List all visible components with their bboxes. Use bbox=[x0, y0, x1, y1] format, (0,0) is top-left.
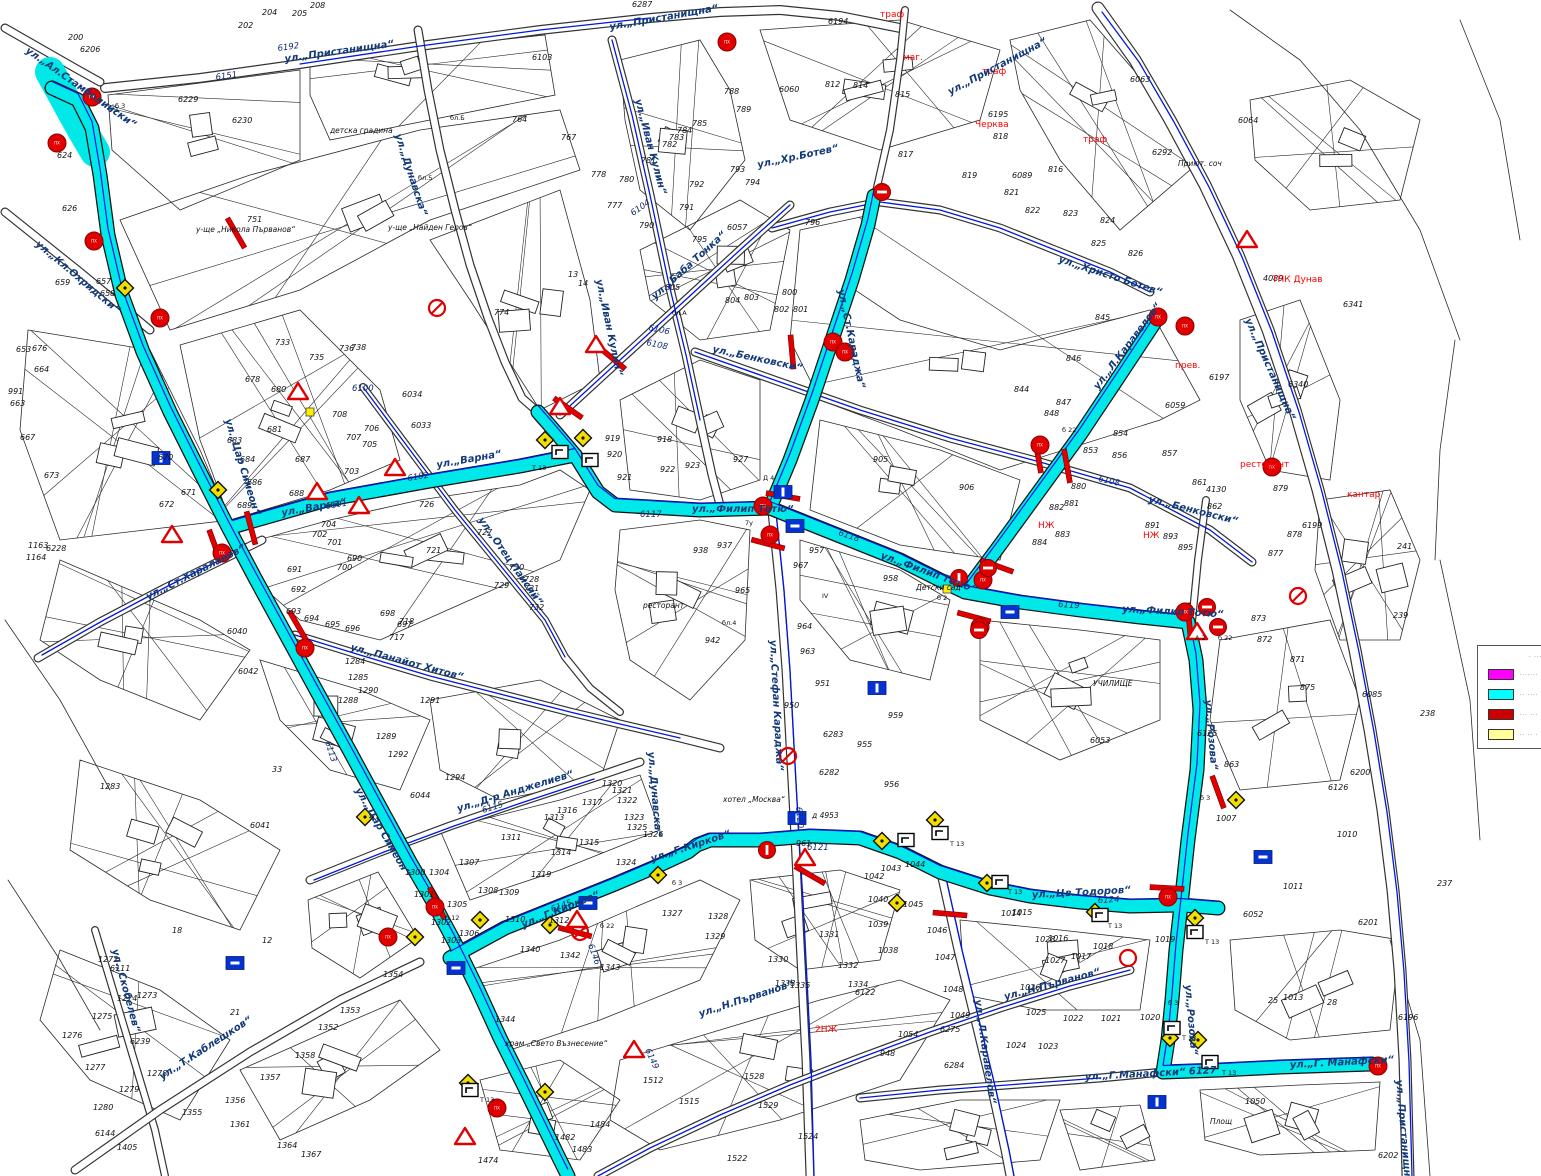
parcel-number: 1515 bbox=[679, 1097, 699, 1106]
parcel-number: 1019 bbox=[1155, 935, 1175, 944]
parcel-number: 6292 bbox=[1152, 148, 1172, 157]
valve-dot bbox=[1234, 798, 1237, 801]
parcel-number: 6057 bbox=[727, 223, 748, 232]
no-entry-bar bbox=[877, 191, 887, 194]
parcel-number: 6052 bbox=[1243, 910, 1263, 919]
parcel-number: 1279 bbox=[119, 1085, 139, 1094]
parcel-number: 794 bbox=[745, 178, 760, 187]
parcel-line bbox=[822, 872, 859, 963]
street-name-label: ул.„Хр.Ботев“ bbox=[756, 143, 840, 171]
parcel-number: 1039 bbox=[868, 920, 888, 929]
parcel-number: 1405 bbox=[117, 1143, 137, 1152]
parcel-number: 1324 bbox=[616, 858, 636, 867]
road-code: 6100 bbox=[352, 384, 374, 394]
parcel-number: 6040 bbox=[227, 627, 247, 636]
parcel-number: 21 bbox=[230, 1008, 240, 1017]
road-code: 6121 bbox=[807, 843, 829, 853]
hydrant-label: ПХ bbox=[724, 40, 730, 45]
poi-label: у-ще „Найден Геров“ bbox=[387, 223, 472, 232]
parcel-number: 6340 bbox=[1288, 380, 1308, 389]
parcel-number: 967 bbox=[793, 561, 809, 570]
legend-swatch-icon bbox=[1488, 709, 1514, 720]
shaft-box-marker bbox=[898, 834, 914, 847]
parcel-number: 789 bbox=[736, 105, 751, 114]
parcel-number: 1040 bbox=[868, 895, 888, 904]
parcel-block bbox=[1250, 80, 1420, 210]
parcel-line bbox=[106, 811, 219, 872]
street-casing bbox=[598, 970, 1130, 1176]
parcel-number: 1361 bbox=[230, 1120, 250, 1129]
parcel-line bbox=[1286, 932, 1314, 1038]
parcel-number: 824 bbox=[1100, 216, 1115, 225]
building-outline bbox=[139, 859, 161, 875]
hydrant-label: ПХ bbox=[830, 340, 836, 345]
parcel-number: 991 bbox=[8, 387, 23, 396]
parcel-number: 921 bbox=[617, 473, 632, 482]
road-code: 6117 bbox=[640, 510, 662, 520]
parcel-number: 1007 bbox=[1216, 814, 1237, 823]
valve-dot bbox=[985, 881, 988, 884]
parcel-number: 822 bbox=[1025, 206, 1040, 215]
parcel-number: 1164 bbox=[26, 553, 46, 562]
parcel-line bbox=[1379, 492, 1388, 640]
parcel-number: 733 bbox=[275, 338, 290, 347]
parcel-number: 1020 bbox=[1140, 1013, 1160, 1022]
parcel-number: 1292 bbox=[388, 750, 408, 759]
parcel-number: 202 bbox=[238, 21, 253, 30]
utility-red-label: НЖ bbox=[1143, 531, 1160, 541]
parcel-number: 873 bbox=[1251, 614, 1266, 623]
parcel-number: 856 bbox=[1112, 451, 1127, 460]
parcel-number: 6089 bbox=[1012, 171, 1032, 180]
building-outline bbox=[166, 817, 203, 847]
parcel-number: 871 bbox=[1290, 655, 1305, 664]
info-sign-bar bbox=[876, 684, 879, 693]
map-annotation: А 2 bbox=[1195, 634, 1206, 642]
valve-dot bbox=[1168, 1036, 1171, 1039]
valve-dot bbox=[543, 1090, 546, 1093]
parcel-number: 13 bbox=[568, 270, 578, 279]
parcel-number: 774 bbox=[494, 308, 509, 317]
parcel-number: 696 bbox=[345, 624, 360, 633]
parcel-line bbox=[478, 821, 604, 853]
parcel-number: 1047 bbox=[935, 953, 956, 962]
parcel-number: 6144 bbox=[95, 1129, 115, 1138]
building-outline bbox=[1338, 128, 1365, 151]
parcel-number: 1010 bbox=[1337, 830, 1357, 839]
map-annotation: бл.5 bbox=[418, 174, 432, 182]
parcel-number: 1054 bbox=[898, 1030, 918, 1039]
building-outline bbox=[1051, 687, 1092, 707]
parcel-number: 1352 bbox=[318, 1023, 338, 1032]
map-annotation: б 3 bbox=[1200, 794, 1210, 802]
parcel-number: 938 bbox=[693, 546, 708, 555]
parcel-number: 1023 bbox=[1038, 1042, 1058, 1051]
parcel-number: 795 bbox=[692, 235, 707, 244]
map-annotation: Т 13 bbox=[1007, 888, 1022, 896]
utility-red-label: НЖ bbox=[1038, 521, 1055, 531]
parcel-number: 624 bbox=[57, 151, 72, 160]
road-code: 6151 bbox=[215, 70, 238, 83]
parcel-number: 1358 bbox=[295, 1051, 315, 1060]
parcel-number: 204 bbox=[262, 8, 277, 17]
map-annotation: б 3 bbox=[672, 879, 682, 887]
utility-red-label: маг. bbox=[903, 53, 923, 63]
closure-bar-marker bbox=[1210, 775, 1226, 809]
map-annotation: б 12 bbox=[445, 914, 459, 922]
map-annotation: IV bbox=[822, 592, 829, 600]
parcel-number: 1017 bbox=[1071, 952, 1092, 961]
parcel-number: 875 bbox=[1300, 683, 1315, 692]
parcel-number: 1285 bbox=[348, 673, 368, 682]
parcel-line bbox=[822, 872, 846, 967]
parcel-number: 704 bbox=[321, 520, 336, 529]
parcel-number: 717 bbox=[389, 633, 405, 642]
parcel-line bbox=[59, 564, 249, 652]
parcel-number: 6041 bbox=[250, 821, 270, 830]
parcel-number: 823 bbox=[1063, 209, 1078, 218]
map-annotation: б 22 bbox=[1062, 426, 1076, 434]
parcel-number: 1050 bbox=[1245, 1097, 1265, 1106]
parcel-number: 1328 bbox=[708, 912, 728, 921]
parcel-number: 777 bbox=[607, 201, 623, 210]
parcel-number: 12 bbox=[262, 936, 272, 945]
parcel-number: 702 bbox=[312, 530, 327, 539]
parcel-number: 948 bbox=[880, 1049, 895, 1058]
legend-row: ·· ·· · bbox=[1488, 729, 1541, 740]
parcel-number: 821 bbox=[1004, 188, 1019, 197]
parcel-line bbox=[478, 967, 706, 968]
parcel-number: 1315 bbox=[579, 838, 599, 847]
parcel-line bbox=[857, 455, 953, 528]
map-annotation: б 3 bbox=[1168, 999, 1178, 1007]
parcel-number: 200 bbox=[68, 33, 83, 42]
parcel-number: 663 bbox=[10, 399, 25, 408]
parcel-number: 767 bbox=[561, 133, 577, 142]
road-code: 6108 bbox=[1097, 474, 1121, 489]
parcel-number: 804 bbox=[725, 296, 740, 305]
utility-red-label: траф bbox=[880, 10, 904, 20]
parcel-number: 1364 bbox=[277, 1141, 297, 1150]
parcel-number: 963 bbox=[800, 647, 815, 656]
parcel-number: 238 bbox=[1420, 709, 1435, 718]
parcel-number: 825 bbox=[1091, 239, 1106, 248]
parcel-number: 1277 bbox=[85, 1063, 106, 1072]
parcel-number: 6063 bbox=[1130, 75, 1150, 84]
parcel-number: 1046 bbox=[927, 926, 947, 935]
parcel-number: 701 bbox=[327, 538, 342, 547]
parcel-number: 6206 bbox=[80, 45, 100, 54]
shaft-box-marker bbox=[932, 827, 948, 840]
road-code: 6119 bbox=[1058, 600, 1080, 611]
parcel-number: 1027 bbox=[1045, 956, 1066, 965]
parcel-number: 667 bbox=[20, 433, 36, 442]
no-entry-bar bbox=[1213, 626, 1223, 629]
no-stopping-bar bbox=[766, 845, 769, 855]
valve-dot bbox=[216, 488, 219, 491]
warning-triangle-icon bbox=[385, 459, 405, 475]
building-outline bbox=[1091, 1109, 1116, 1131]
parcel-line bbox=[513, 202, 530, 368]
parcel-number: 205 bbox=[292, 9, 307, 18]
parcel-number: 1355 bbox=[182, 1108, 202, 1117]
parcel-number: 861 bbox=[1192, 478, 1207, 487]
parcel-number: 845 bbox=[1095, 313, 1110, 322]
shaft-box-marker bbox=[1164, 1022, 1180, 1035]
map-annotation: б 22 bbox=[600, 922, 614, 930]
parcel-number: 1484 bbox=[590, 1120, 610, 1129]
parcel-number: 678 bbox=[245, 375, 260, 384]
parcel-number: 826 bbox=[1128, 249, 1143, 258]
parcel-number: 1529 bbox=[758, 1101, 778, 1110]
street-fill bbox=[598, 970, 1130, 1176]
parcel-number: 872 bbox=[1257, 635, 1272, 644]
parcel-number: 895 bbox=[1178, 543, 1193, 552]
parcel-number: 6053 bbox=[1090, 736, 1110, 745]
parcel-number: 626 bbox=[62, 204, 77, 213]
parcel-number: 780 bbox=[619, 175, 634, 184]
utility-red-label: ТПК Дунав bbox=[1271, 275, 1323, 285]
parcel-number: 844 bbox=[1014, 385, 1029, 394]
parcel-number: 920 bbox=[607, 450, 622, 459]
building-outline bbox=[656, 572, 677, 595]
parcel-number: 857 bbox=[1162, 449, 1178, 458]
street-name-label: ул.„Розова“ bbox=[1182, 984, 1199, 1056]
warning-triangle-icon bbox=[586, 336, 606, 352]
parcel-number: 818 bbox=[993, 132, 1008, 141]
poi-label: детска градина bbox=[329, 126, 393, 135]
parcel-number: 729 bbox=[494, 581, 509, 590]
field-line bbox=[1435, 340, 1455, 560]
parcel-number: 1512 bbox=[643, 1076, 663, 1085]
valve-dot bbox=[413, 935, 416, 938]
restriction-slash bbox=[432, 303, 443, 314]
parcel-line bbox=[286, 716, 421, 726]
parcel-line bbox=[826, 872, 843, 965]
parcel-number: 881 bbox=[1064, 499, 1079, 508]
closure-bar-marker bbox=[933, 910, 967, 918]
restriction-slash bbox=[1293, 591, 1304, 602]
parcel-number: 1357 bbox=[260, 1073, 281, 1082]
poi-label: Площ bbox=[1210, 1117, 1232, 1126]
legend-swatch-icon bbox=[1488, 669, 1514, 680]
parcel-number: 738 bbox=[351, 343, 366, 352]
parcel-number: 14 bbox=[578, 279, 588, 288]
legend-swatch-icon bbox=[1488, 689, 1514, 700]
parcel-number: 846 bbox=[1066, 354, 1081, 363]
parcel-number: 700 bbox=[337, 563, 352, 572]
parcel-number: 1306 bbox=[459, 929, 479, 938]
parcel-number: 6199 bbox=[1302, 521, 1322, 530]
poi-label: храм „Свето Възнесение“ bbox=[504, 1039, 607, 1048]
parcel-number: 1524 bbox=[798, 1132, 818, 1141]
parcel-number: 905 bbox=[873, 455, 888, 464]
hydrant-label: ПХ bbox=[302, 646, 308, 651]
parcel-number: 817 bbox=[898, 150, 914, 159]
parcel-number: 942 bbox=[705, 636, 720, 645]
warning-triangle-icon bbox=[455, 1128, 475, 1144]
parcel-number: 1340 bbox=[520, 945, 540, 954]
shaft-box-marker bbox=[1092, 909, 1108, 922]
parcel-number: 1483 bbox=[572, 1145, 592, 1154]
parcel-number: 1319 bbox=[531, 870, 551, 879]
parcel-number: 1289 bbox=[376, 732, 396, 741]
map-annotation: Т 13 bbox=[1107, 922, 1122, 930]
hydrant-label: ПХ bbox=[385, 935, 391, 940]
parcel-line bbox=[625, 985, 879, 1129]
parcel-number: 6287 bbox=[632, 0, 653, 9]
parcel-number: 1016 bbox=[1048, 934, 1068, 943]
parcel-number: 1021 bbox=[1101, 1014, 1121, 1023]
valve-dot bbox=[363, 815, 366, 818]
poi-label: УЧИЛИЩЕ bbox=[1093, 679, 1133, 688]
parcel-number: 6034 bbox=[402, 390, 422, 399]
parcel-line bbox=[1225, 1089, 1347, 1151]
map-annotation: бл.Б bbox=[450, 114, 465, 122]
road-code: 6120 bbox=[793, 806, 805, 828]
parcel-number: 1280 bbox=[93, 1103, 113, 1112]
parcel-number: 692 bbox=[291, 585, 306, 594]
parcel-number: 698 bbox=[380, 609, 395, 618]
info-sign-bar bbox=[1156, 1098, 1159, 1107]
warning-triangle-icon bbox=[567, 911, 587, 927]
parcel-number: 764 bbox=[512, 115, 527, 124]
building-outline bbox=[188, 136, 219, 156]
parcel-number: 1308 bbox=[478, 886, 498, 895]
parcel-number: 1288 bbox=[338, 696, 358, 705]
parcel-number: 6283 bbox=[823, 730, 843, 739]
no-entry-bar bbox=[983, 567, 993, 570]
parcel-number: 4130 bbox=[1206, 485, 1226, 494]
parcel-line bbox=[1267, 628, 1288, 788]
parcel-number: 816 bbox=[1048, 165, 1063, 174]
parcel-number: 6341 bbox=[1343, 300, 1363, 309]
parcel-number: 693 bbox=[286, 607, 301, 616]
parcel-number: 1011 bbox=[1283, 882, 1303, 891]
parcel-number: 688 bbox=[289, 489, 304, 498]
parcel-number: 6197 bbox=[1209, 373, 1230, 382]
building-outline bbox=[950, 1109, 980, 1136]
valve-dot bbox=[656, 873, 659, 876]
parcel-line bbox=[674, 373, 679, 497]
valve-dot bbox=[478, 918, 481, 921]
parcel-number: 653 bbox=[16, 345, 31, 354]
parcel-number: 706 bbox=[364, 424, 379, 433]
parcel-number: 880 bbox=[1071, 482, 1086, 491]
info-sign-bar bbox=[791, 525, 800, 528]
parcel-line bbox=[1283, 628, 1331, 780]
field-line bbox=[1230, 10, 1460, 340]
parcel-number: 1322 bbox=[617, 796, 637, 805]
utility-red-label: Черква bbox=[975, 120, 1009, 130]
water-pipe-line bbox=[1102, 12, 1412, 1176]
parcel-number: 848 bbox=[1044, 409, 1059, 418]
yellow-square-marker bbox=[306, 408, 314, 416]
parcel-number: 6196 bbox=[1398, 1013, 1418, 1022]
info-sign-bar bbox=[452, 967, 461, 970]
hydrant-label: ПХ bbox=[1165, 895, 1171, 900]
parcel-line bbox=[122, 774, 234, 928]
valve-dot bbox=[895, 901, 898, 904]
parcel-number: 718 bbox=[399, 617, 414, 626]
parcel-number: 1307 bbox=[459, 858, 480, 867]
parcel-number: 788 bbox=[724, 87, 739, 96]
parcel-line bbox=[1269, 96, 1396, 200]
map-annotation: Т 13 bbox=[531, 464, 546, 472]
parcel-number: 721 bbox=[426, 546, 441, 555]
parcel-number: 1354 bbox=[383, 970, 403, 979]
street-name-label: ул.„Т.Каблешков“ bbox=[157, 1013, 254, 1082]
parcel-number: 6228 bbox=[46, 544, 66, 553]
parcel-number: 1316 bbox=[557, 806, 577, 815]
parcel-number: 791 bbox=[679, 203, 694, 212]
legend-row: ·· ···· bbox=[1488, 689, 1541, 700]
parcel-number: 785 bbox=[692, 119, 707, 128]
parcel-number: 673 bbox=[44, 471, 59, 480]
parcel-number: 671 bbox=[181, 488, 196, 497]
parcel-number: 1049 bbox=[950, 1011, 970, 1020]
city-map-canvas: ПХПХПХПХПХПХПХПХПХПХПХПХПХПХПХПХПХПХПХПХ… bbox=[0, 0, 1541, 1176]
parcel-number: 1332 bbox=[838, 961, 858, 970]
legend-entry-text: ······· bbox=[1520, 672, 1538, 678]
parcel-number: 918 bbox=[657, 435, 672, 444]
parcel-number: 800 bbox=[782, 288, 797, 297]
parcel-number: 1038 bbox=[878, 946, 898, 955]
road-code: 6108 bbox=[645, 338, 669, 352]
utility-red-label: прев. bbox=[1175, 361, 1200, 371]
parcel-number: 955 bbox=[857, 740, 872, 749]
valve-dot bbox=[123, 286, 126, 289]
info-sign-bar bbox=[1006, 611, 1015, 614]
parcel-number: 33 bbox=[272, 765, 282, 774]
map-annotation: б 22 bbox=[1218, 634, 1232, 642]
legend-row: ······· bbox=[1488, 669, 1541, 680]
legend-row: ··· ··· bbox=[1488, 709, 1541, 720]
utility-red-label: 2НЖ bbox=[815, 1025, 837, 1035]
hydrant-label: ПХ bbox=[1182, 324, 1188, 329]
parcel-block bbox=[20, 330, 230, 540]
parcel-number: 670 bbox=[158, 453, 173, 462]
parcel-number: 694 bbox=[304, 614, 319, 623]
parcel-number: 1301 bbox=[414, 890, 434, 899]
parcel-number: 957 bbox=[809, 546, 825, 555]
parcel-number: 1474 bbox=[478, 1156, 498, 1165]
parcel-number: 1321 bbox=[612, 786, 632, 795]
parcel-number: 814 bbox=[853, 81, 868, 90]
hydrant-label: ПХ bbox=[54, 141, 60, 146]
parcel-number: 1327 bbox=[662, 909, 683, 918]
road-code: 6146 bbox=[585, 943, 602, 967]
street-name-label: ул.„Филип Тотю“ bbox=[692, 504, 794, 515]
parcel-number: 802 bbox=[774, 305, 789, 314]
field-line bbox=[1440, 560, 1480, 840]
info-sign-bar bbox=[231, 962, 240, 965]
warning-triangle-icon bbox=[162, 526, 182, 542]
parcel-number: 847 bbox=[1056, 398, 1072, 407]
parcel-number: 1331 bbox=[819, 930, 839, 939]
ring-marker bbox=[1120, 950, 1136, 966]
parcel-number: 1018 bbox=[1093, 942, 1113, 951]
parcel-number: 1048 bbox=[943, 985, 963, 994]
street-casing bbox=[418, 30, 538, 412]
parcel-number: 726 bbox=[419, 500, 434, 509]
map-legend: · ··· ········· ······· ····· ·· · bbox=[1477, 645, 1541, 749]
parcel-number: 793 bbox=[730, 165, 745, 174]
map-annotation: Т 13 bbox=[949, 840, 964, 848]
parcel-number: 1015 bbox=[1012, 908, 1032, 917]
parcel-number: 6284 bbox=[944, 1061, 964, 1070]
poi-label: у-ще „Никола Първанов“ bbox=[195, 225, 295, 234]
